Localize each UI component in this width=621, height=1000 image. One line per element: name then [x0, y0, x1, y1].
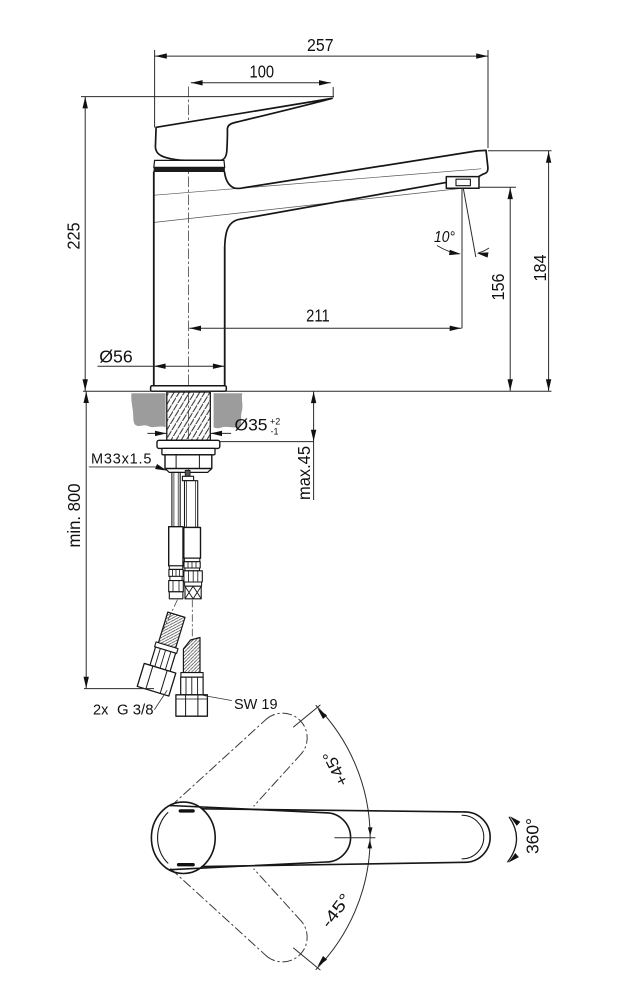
- svg-text:+2: +2: [270, 417, 280, 427]
- svg-text:SW 19: SW 19: [234, 697, 278, 713]
- svg-text:M33x1.5: M33x1.5: [91, 452, 152, 468]
- svg-text:Ø56: Ø56: [99, 346, 133, 366]
- svg-text:225: 225: [64, 222, 84, 249]
- svg-text:min. 800: min. 800: [64, 483, 84, 547]
- svg-text:Ø35: Ø35: [235, 416, 268, 435]
- svg-text:-1: -1: [271, 427, 279, 437]
- svg-text:2x: 2x: [93, 703, 109, 719]
- svg-text:100: 100: [250, 61, 275, 81]
- svg-text:G 3/8: G 3/8: [117, 703, 154, 719]
- svg-text:10°: 10°: [434, 229, 455, 246]
- svg-text:360°: 360°: [523, 818, 543, 854]
- svg-text:156: 156: [488, 274, 508, 301]
- svg-text:211: 211: [306, 305, 330, 325]
- svg-text:max.45: max.45: [294, 446, 314, 500]
- svg-text:257: 257: [307, 35, 334, 55]
- svg-text:184: 184: [530, 254, 550, 281]
